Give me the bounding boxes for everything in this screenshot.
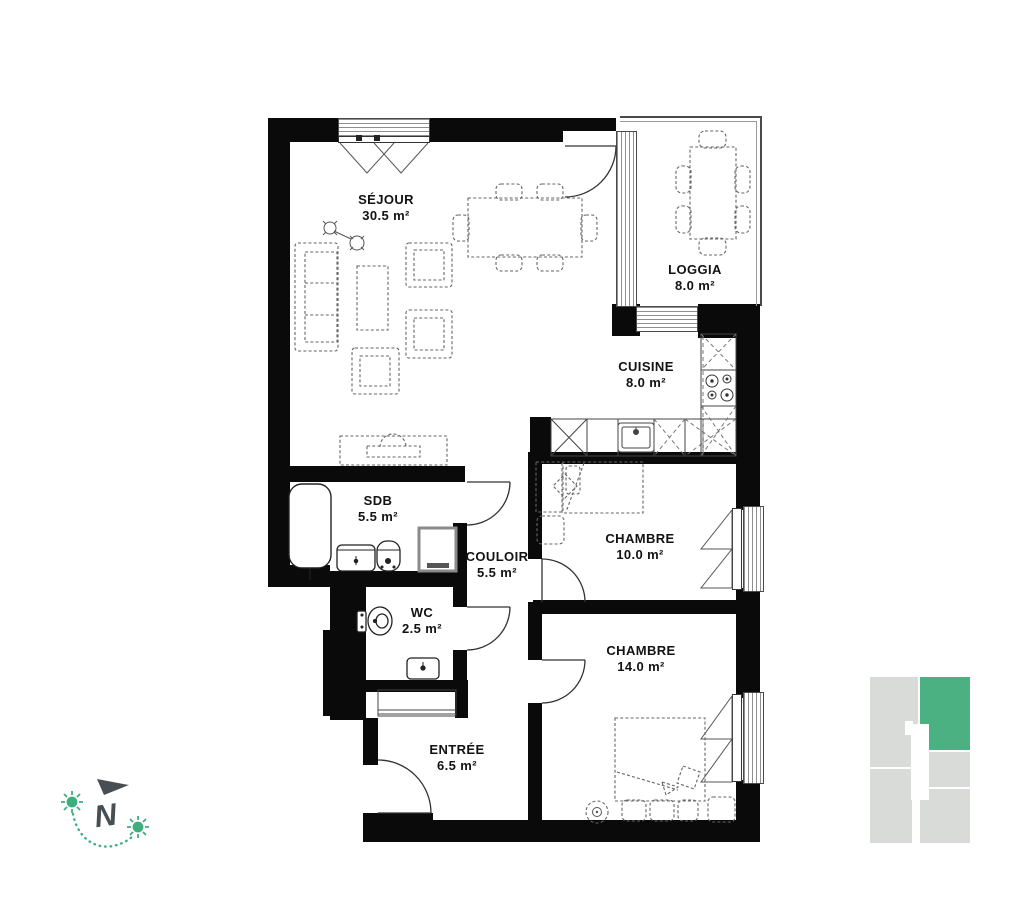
wall-segment	[453, 650, 467, 680]
window-frame	[338, 136, 430, 143]
room-name: LOGGIA	[668, 262, 722, 278]
window-loggia-cuisine	[636, 306, 698, 332]
wall-segment	[268, 118, 290, 587]
door-wc	[467, 607, 510, 650]
room-label-wc: WC 2.5 m²	[402, 605, 442, 637]
door-entrance	[378, 760, 431, 813]
room-label-chambre2: CHAMBRE 14.0 m²	[606, 643, 675, 675]
room-area: 8.0 m²	[618, 375, 674, 391]
sun-path-arc	[73, 814, 132, 847]
room-area: 2.5 m²	[402, 621, 442, 637]
wall-segment	[530, 417, 551, 457]
sun-icon	[61, 791, 83, 813]
building-position-indicator	[870, 677, 970, 843]
door-sdb	[467, 482, 510, 525]
wall-segment	[430, 118, 563, 142]
room-area: 5.5 m²	[358, 509, 398, 525]
window-handle	[356, 135, 362, 141]
ceiling-light	[323, 221, 364, 250]
window-handle	[374, 135, 380, 141]
wall-segment	[540, 452, 736, 464]
dining-table	[453, 184, 597, 271]
sdb-washbasin	[337, 545, 375, 571]
wall-segment	[736, 330, 760, 464]
room-label-sdb: SDB 5.5 m²	[358, 493, 398, 525]
kitchen-right-column	[701, 334, 736, 456]
wall-segment	[528, 703, 542, 822]
door-sejour-loggia	[565, 146, 616, 197]
wc-washbasin	[407, 658, 439, 679]
building-block	[928, 752, 970, 787]
room-name: CHAMBRE	[605, 531, 674, 547]
room-name: CUISINE	[618, 359, 674, 375]
room-label-loggia: LOGGIA 8.0 m²	[668, 262, 722, 294]
room-name: COULOIR	[466, 549, 529, 565]
building-core-notch	[911, 724, 929, 800]
room-name: ENTRÉE	[429, 742, 484, 758]
wall-segment	[533, 600, 736, 614]
wall-segment	[268, 565, 330, 587]
wall-segment	[323, 630, 335, 716]
armchair	[352, 348, 399, 394]
window-swing-chambre1	[701, 510, 732, 588]
wall-segment	[736, 464, 760, 510]
window-swing-chambre2	[701, 696, 732, 782]
room-name: WC	[402, 605, 442, 621]
room-area: 6.5 m²	[429, 758, 484, 774]
sideboard	[340, 434, 447, 465]
window-frame-chambre1	[732, 508, 742, 590]
wall-segment	[358, 680, 468, 692]
room-name: SÉJOUR	[358, 192, 414, 208]
window-shutter-chambre2	[743, 692, 764, 784]
north-letter: N	[92, 796, 120, 834]
window-shutter-box	[338, 118, 430, 137]
door-chambre2	[542, 660, 585, 703]
wall-segment	[455, 692, 468, 718]
wall-segment	[363, 813, 433, 842]
armchair	[406, 243, 452, 287]
building-core-notch	[905, 721, 913, 735]
sun-icon	[127, 816, 149, 838]
chambre2-bed	[615, 718, 735, 822]
sdb-toilet	[377, 541, 400, 571]
wall-segment	[528, 452, 542, 559]
room-area: 14.0 m²	[606, 659, 675, 675]
washing-machine	[419, 528, 456, 571]
wall-segment	[363, 718, 378, 765]
sofa	[295, 243, 338, 351]
hob	[706, 375, 733, 401]
window-frame-chambre2	[732, 694, 742, 782]
north-compass: N	[61, 779, 149, 847]
door-chambre1	[542, 559, 585, 602]
window-swing-top	[340, 143, 428, 173]
room-name: CHAMBRE	[606, 643, 675, 659]
entree-closet	[378, 690, 456, 716]
room-label-couloir: COULOIR 5.5 m²	[466, 549, 529, 581]
chambre1-desk	[536, 462, 577, 544]
wall-segment	[563, 118, 616, 131]
window-shutter-chambre1	[743, 506, 764, 592]
building-block	[870, 769, 912, 843]
chambre1-bed	[562, 462, 643, 513]
wall-segment	[268, 118, 338, 142]
north-arrow-icon	[97, 779, 129, 795]
wall-segment	[453, 587, 467, 607]
wall-segment	[330, 580, 366, 720]
wall-segment	[736, 588, 760, 698]
room-area: 5.5 m²	[466, 565, 529, 581]
floor-plan: N SÉJOUR 30.5 m² LOGGIA 8.0 m² CUISINE 8…	[0, 0, 1020, 907]
armchair	[406, 310, 452, 358]
room-label-entree: ENTRÉE 6.5 m²	[429, 742, 484, 774]
room-label-chambre1: CHAMBRE 10.0 m²	[605, 531, 674, 563]
room-label-sejour: SÉJOUR 30.5 m²	[358, 192, 414, 224]
room-area: 30.5 m²	[358, 208, 414, 224]
wall-segment	[283, 466, 465, 482]
room-label-cuisine: CUISINE 8.0 m²	[618, 359, 674, 391]
kitchen-sink	[618, 423, 654, 452]
room-name: SDB	[358, 493, 398, 509]
coffee-table	[357, 266, 388, 330]
kitchen-counter	[551, 336, 736, 456]
room-area: 10.0 m²	[605, 547, 674, 563]
room-area: 8.0 m²	[668, 278, 722, 294]
